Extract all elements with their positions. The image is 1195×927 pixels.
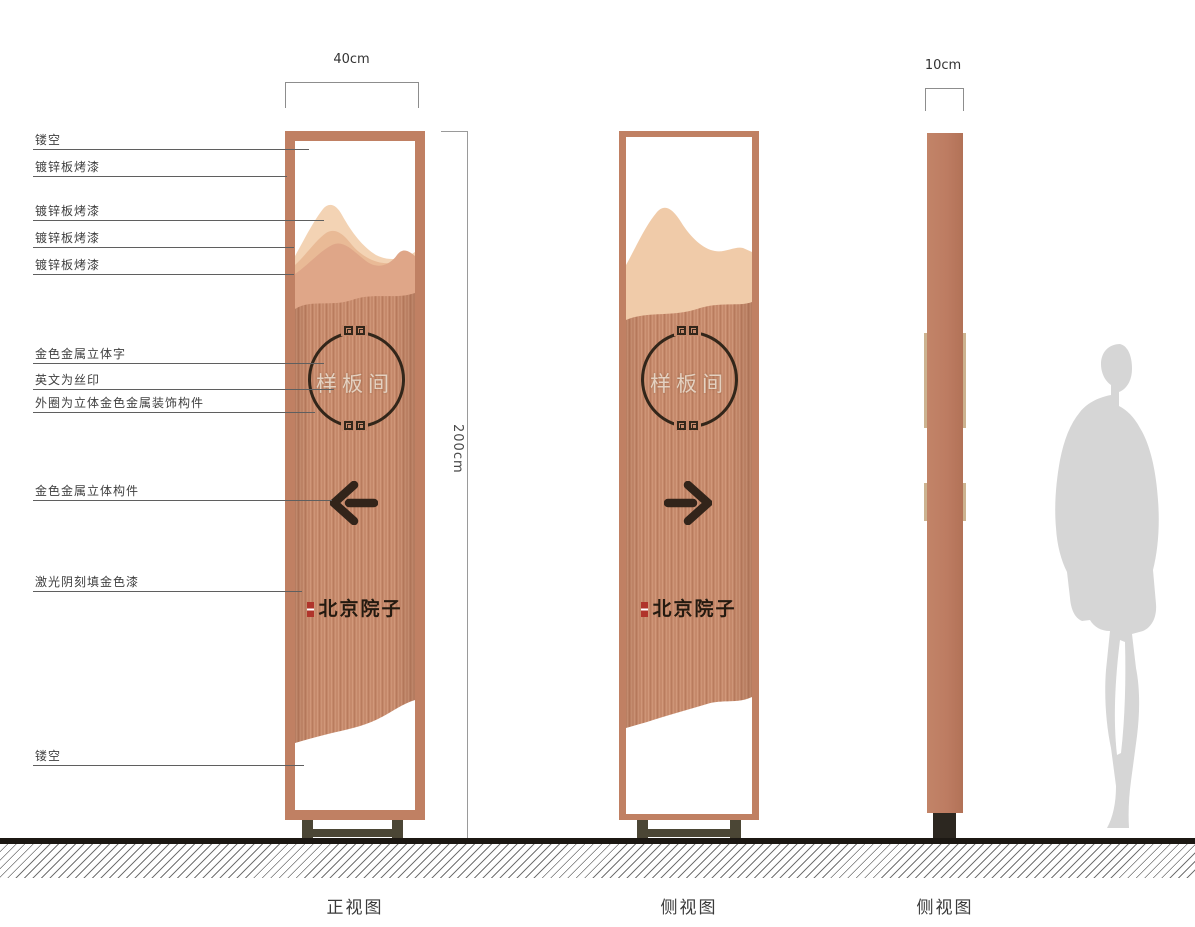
arrow-left-icon — [330, 481, 378, 525]
callout-english-silkscreen: 英文为丝印 — [33, 373, 334, 390]
callout-label: 镂空 — [35, 749, 61, 763]
dim-height: 200cm — [450, 424, 465, 474]
dim-front-width: 40cm — [285, 52, 418, 67]
red-seal-icon — [641, 602, 648, 617]
brand-calligraphy: 北京院子 — [295, 594, 415, 621]
callout-label: 镀锌板烤漆 — [35, 231, 100, 245]
callout-gold-3d-text: 金色金属立体字 — [33, 347, 324, 364]
callout-label: 镀锌板烤漆 — [35, 160, 100, 174]
sign-base-bar — [641, 829, 737, 837]
front-view-sign: 样板间 北京院子 — [285, 131, 425, 820]
callout-galvanized-2: 镀锌板烤漆 — [33, 204, 324, 221]
human-silhouette — [1040, 340, 1170, 840]
callout-label: 镂空 — [35, 133, 61, 147]
brand-text: 北京院子 — [318, 598, 402, 620]
view-label-front: 正视图 — [285, 893, 425, 918]
ground-hatching — [0, 844, 1195, 878]
red-seal-icon — [307, 602, 314, 617]
callout-outer-ring: 外圈为立体金色金属装饰构件 — [33, 396, 315, 413]
callout-galvanized-1: 镀锌板烤漆 — [33, 160, 287, 177]
callout-label: 金色金属立体构件 — [35, 484, 139, 498]
callout-hollow-bottom: 镂空 — [33, 749, 304, 766]
front-sign-panel: 样板间 北京院子 — [295, 141, 415, 810]
dim-height-tick — [441, 131, 467, 132]
dim-front-width-bracket — [285, 82, 419, 108]
brand-calligraphy: 北京院子 — [626, 594, 752, 621]
brand-text: 北京院子 — [652, 598, 736, 620]
back-sign-panel: 样板间 北京院子 — [626, 137, 752, 814]
callout-label: 金色金属立体字 — [35, 347, 126, 361]
callout-label: 外圈为立体金色金属装饰构件 — [35, 396, 204, 410]
callout-label: 镀锌板烤漆 — [35, 204, 100, 218]
callout-gold-3d-component: 金色金属立体构件 — [33, 484, 332, 501]
callout-label: 镀锌板烤漆 — [35, 258, 100, 272]
view-label-side: 侧视图 — [875, 893, 1015, 918]
sign-base-bar — [306, 829, 399, 837]
plaque-text: 样板间 — [626, 368, 752, 398]
callout-label: 激光阴刻填金色漆 — [35, 575, 139, 589]
callout-label: 英文为丝印 — [35, 373, 100, 387]
meander-ornament-icon — [674, 325, 701, 336]
back-mountain-graphic — [626, 137, 752, 814]
front-mountain-graphic — [295, 141, 415, 810]
meander-ornament-icon — [674, 420, 701, 431]
meander-ornament-icon — [341, 325, 368, 336]
dim-side-width: 10cm — [913, 58, 973, 73]
drawing-canvas: 镂空 镀锌板烤漆 镀锌板烤漆 镀锌板烤漆 镀锌板烤漆 金色金属立体字 英文为丝印… — [0, 0, 1195, 927]
callout-galvanized-4: 镀锌板烤漆 — [33, 258, 294, 275]
callout-galvanized-3: 镀锌板烤漆 — [33, 231, 294, 248]
side-base-foot — [933, 813, 956, 838]
callout-hollow-top: 镂空 — [33, 133, 309, 150]
meander-ornament-icon — [341, 420, 368, 431]
dim-height-line — [467, 131, 468, 838]
dim-side-width-bracket — [925, 88, 964, 111]
back-view-sign: 样板间 北京院子 — [619, 131, 759, 820]
side-profile-panel — [927, 133, 963, 813]
callout-laser-engraved: 激光阴刻填金色漆 — [33, 575, 302, 592]
view-label-back: 侧视图 — [619, 893, 759, 918]
arrow-right-icon — [664, 481, 712, 525]
